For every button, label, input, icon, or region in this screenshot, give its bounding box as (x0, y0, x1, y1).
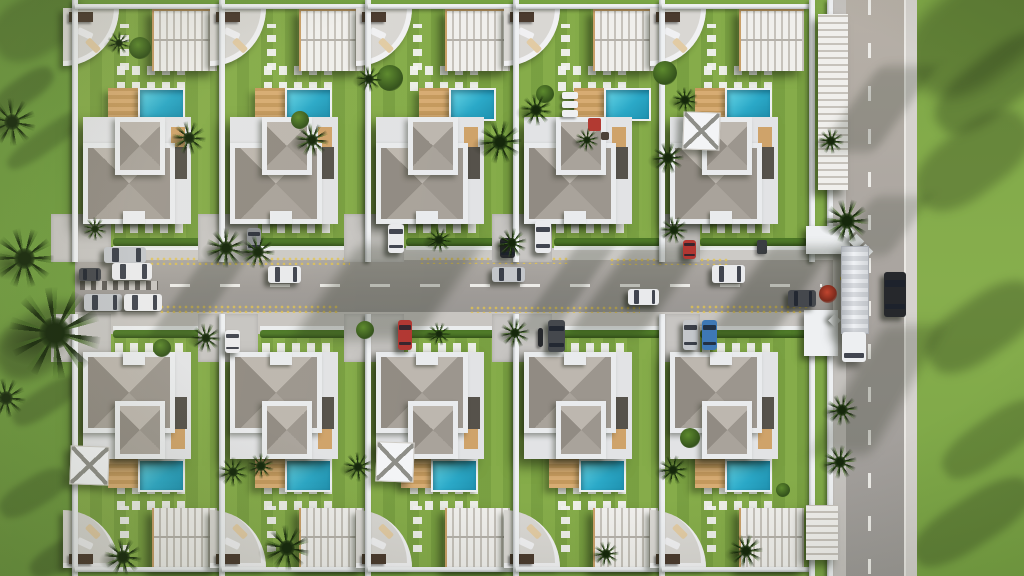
light-vignette (0, 0, 1024, 576)
aerial-render-stage (0, 0, 1024, 576)
